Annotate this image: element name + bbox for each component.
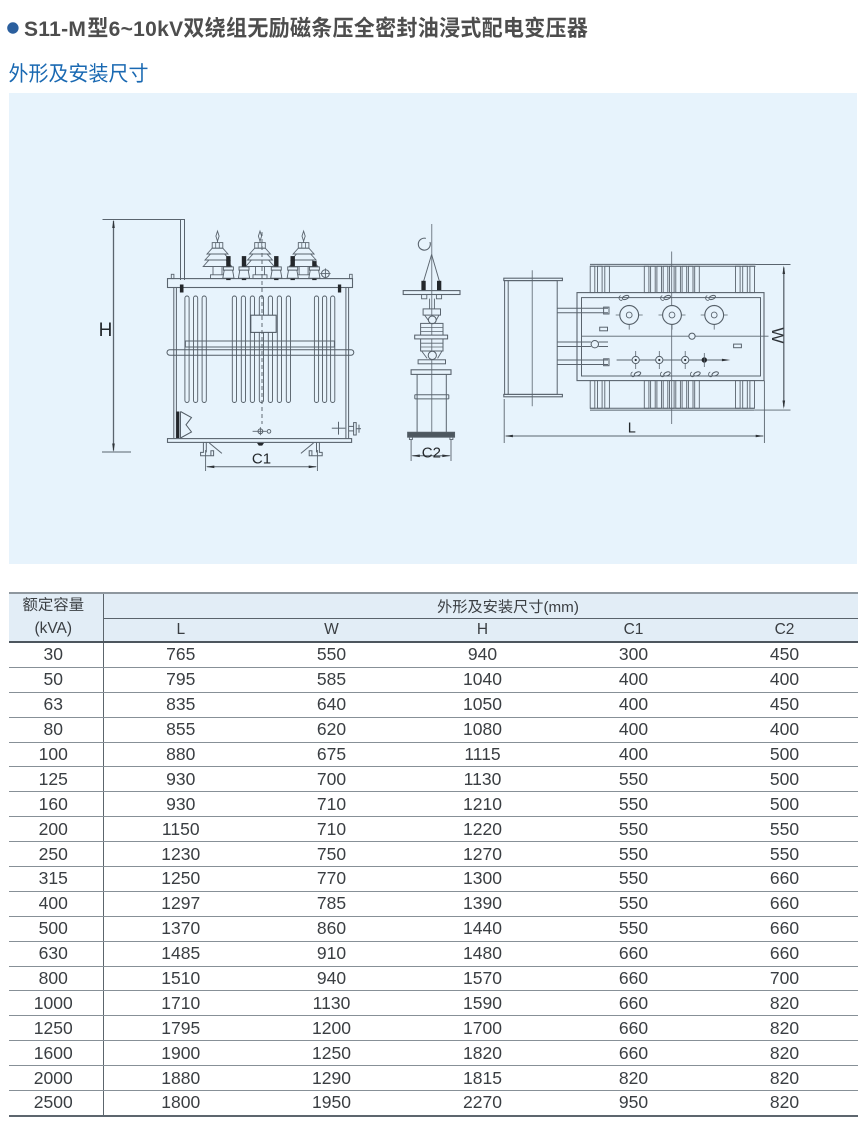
svg-text:S11-M: S11-M: [24, 18, 86, 41]
svg-text:6~10kV: 6~10kV: [109, 18, 184, 41]
svg-text:(mm): (mm): [543, 599, 578, 616]
